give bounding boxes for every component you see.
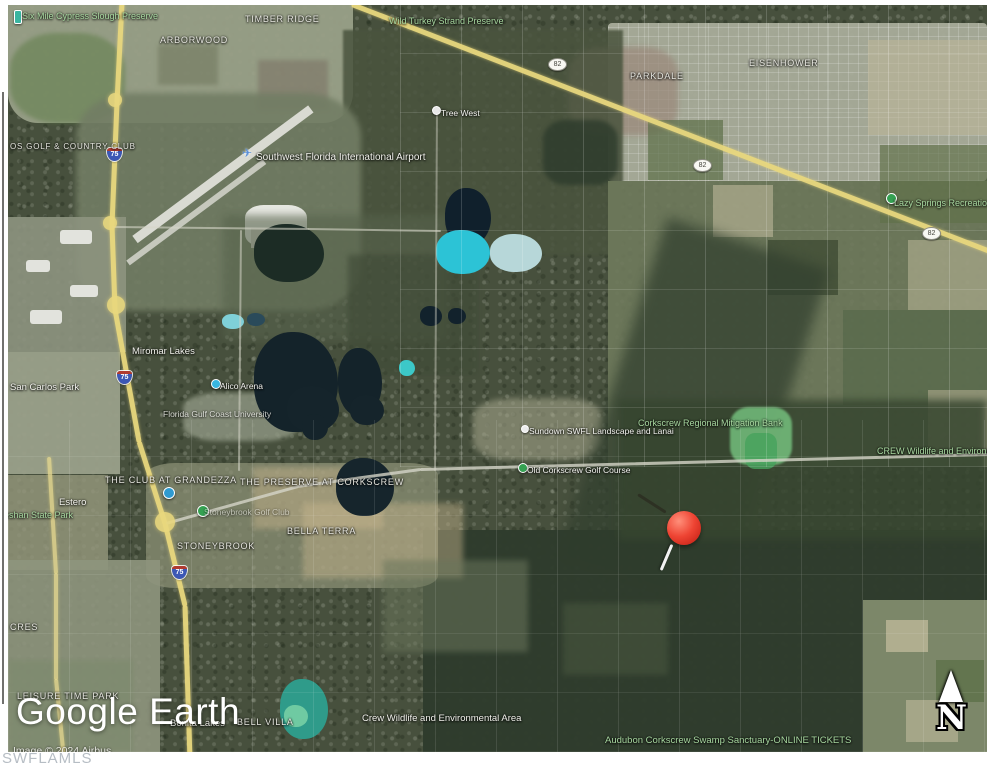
stoneybrook-golf-club-label: Stoneybrook Golf Club bbox=[204, 507, 290, 517]
screenshot-frame: Six Mile Cypress Slough PreserveTIMBER R… bbox=[0, 0, 995, 768]
timber-ridge-label: TIMBER RIDGE bbox=[245, 14, 320, 24]
sr82-shield: 82 bbox=[922, 227, 941, 240]
miromar-lakes-label: Miromar Lakes bbox=[132, 346, 195, 357]
cres-label: CRES bbox=[10, 622, 38, 632]
san-carlos-park-label: San Carlos Park bbox=[10, 382, 79, 393]
sundown-dot[interactable] bbox=[521, 425, 529, 433]
parkdale-label: PARKDALE bbox=[630, 71, 684, 81]
airport-plane-icon: ✈ bbox=[242, 146, 252, 160]
i75-shield: 75 bbox=[117, 371, 132, 384]
red-pushpin[interactable] bbox=[667, 511, 701, 545]
wild-turkey-strand-preserve-label: Wild Turkey Strand Preserve bbox=[389, 16, 504, 26]
bell-villa-label: BELL VILLA bbox=[237, 717, 294, 727]
bella-terra-label: BELLA TERRA bbox=[287, 526, 356, 536]
eisenhower-label: EISENHOWER bbox=[749, 58, 819, 68]
north-label: N bbox=[936, 698, 967, 738]
estero-label: Estero bbox=[59, 497, 86, 508]
tree-west-label: Tree West bbox=[441, 108, 480, 118]
the-club-at-grandezza-label: THE CLUB AT GRANDEZZA bbox=[105, 475, 237, 485]
google-earth-logo: Google Earth bbox=[16, 691, 240, 733]
crew-wildlife-and-environmental-area-label: Crew Wildlife and Environmental Area bbox=[362, 713, 521, 724]
alico-arena-label: Alico Arena bbox=[220, 381, 263, 391]
i75-shield: 75 bbox=[172, 566, 187, 579]
lazy-springs-recreation-park-label: Lazy Springs Recreation Park bbox=[894, 198, 987, 208]
tree-west-pin[interactable] bbox=[432, 106, 441, 115]
the-preserve-at-corkscrew-label: THE PRESERVE AT CORKSCREW bbox=[240, 477, 404, 487]
os-golf-country-club-label: OS GOLF & COUNTRY CLUB bbox=[10, 142, 136, 151]
preserve-corner-pin[interactable] bbox=[14, 10, 22, 24]
six-mile-cypress-slough-preserve-label: Six Mile Cypress Slough Preserve bbox=[22, 11, 158, 21]
mls-watermark: SWFLAMLS bbox=[2, 750, 93, 767]
crew-wildlife-and-environmental-label: CREW Wildlife and Environmental bbox=[877, 446, 987, 456]
stoneybrook-label: STONEYBROOK bbox=[177, 541, 255, 551]
photo-edge-artifact bbox=[2, 92, 4, 704]
swfl-international-airport-label: Southwest Florida International Airport bbox=[256, 152, 426, 163]
sr82-shield: 82 bbox=[693, 159, 712, 172]
map-overlay-layer: Six Mile Cypress Slough PreserveTIMBER R… bbox=[8, 5, 987, 752]
sundown-swfl-landscape-and-lanai-label: Sundown SWFL Landscape and Lanai bbox=[529, 426, 674, 436]
old-corkscrew-golf-course-label: Old Corkscrew Golf Course bbox=[527, 465, 630, 475]
audubon-corkscrew-swamp-sanctuary-label: Audubon Corkscrew Swamp Sanctuary-ONLINE… bbox=[605, 735, 851, 746]
florida-gulf-coast-university-label: Florida Gulf Coast University bbox=[163, 409, 271, 419]
koreshan-state-park-label: Koreshan State Park bbox=[8, 510, 73, 520]
satellite-map[interactable]: Six Mile Cypress Slough PreserveTIMBER R… bbox=[8, 5, 987, 752]
north-arrow[interactable]: N bbox=[933, 668, 973, 743]
arborwood-label: ARBORWOOD bbox=[160, 35, 228, 45]
sr82-shield: 82 bbox=[548, 58, 567, 71]
grandezza-pin[interactable] bbox=[163, 487, 175, 499]
